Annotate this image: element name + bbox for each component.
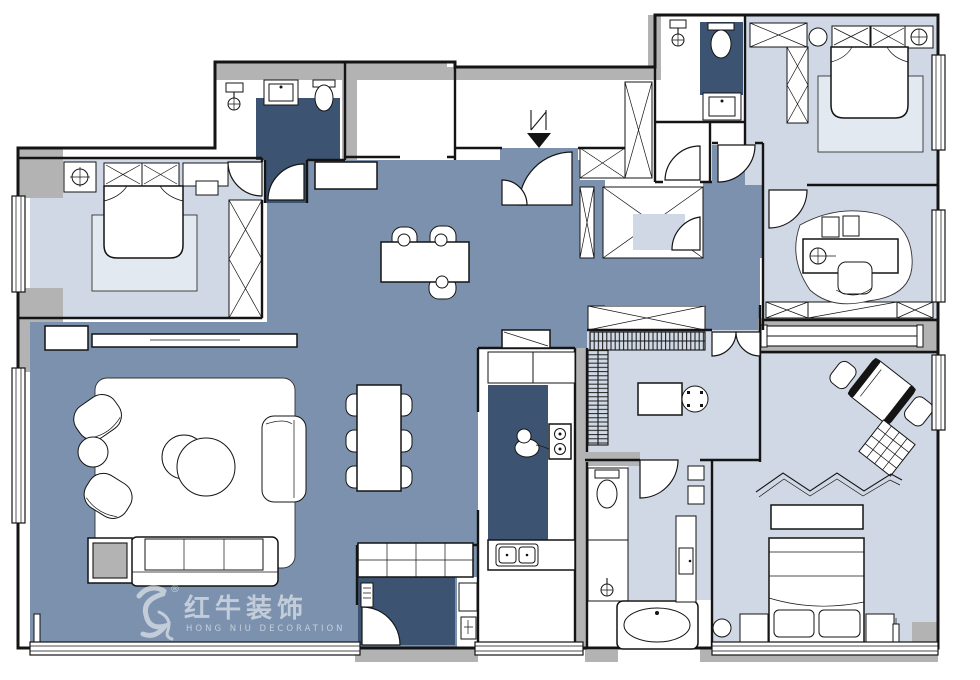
range-hood — [502, 330, 550, 348]
pillows — [832, 26, 906, 47]
nightstand — [866, 614, 894, 645]
window — [712, 642, 938, 655]
side-table-square — [88, 538, 132, 583]
bed-double — [104, 186, 183, 258]
watermark-brand-en: HONG NIU DECORATION — [186, 624, 346, 634]
chaise-chair — [262, 416, 306, 502]
watermark-brand-cn: 红牛装饰 — [184, 593, 308, 624]
desk-chair — [836, 262, 872, 295]
wardrobe-top-cabinet — [588, 306, 705, 330]
pillows — [104, 163, 179, 186]
square-table — [638, 383, 682, 415]
bathtub-icon — [617, 601, 698, 649]
sink-icon — [703, 93, 741, 120]
nightstand — [740, 614, 768, 645]
tall-cabinet — [676, 516, 696, 602]
bed-double — [831, 47, 908, 118]
kitchen-sink-icon — [488, 540, 575, 570]
window — [12, 368, 25, 523]
cabinet-grid — [358, 543, 473, 577]
window — [932, 210, 945, 302]
dining-table — [357, 385, 401, 491]
ceiling-light-icon — [64, 162, 96, 192]
shower-icon — [226, 83, 243, 110]
drying-rail — [761, 325, 923, 347]
round-table — [682, 386, 708, 412]
ceiling-light-icon — [905, 26, 933, 48]
storage-closet — [603, 187, 703, 258]
window — [475, 642, 583, 655]
study-cabinet-row — [766, 302, 933, 318]
sink-icon — [264, 80, 298, 105]
toilet-icon — [595, 470, 619, 508]
side-table-round — [78, 437, 108, 467]
shower-icon — [670, 20, 686, 46]
window — [932, 355, 945, 430]
floor-plan-svg: ® 红牛装饰 HONG NIU DECORATION — [0, 0, 980, 680]
dining-area — [346, 385, 412, 491]
hanging-rail-horizontal — [590, 332, 705, 350]
plant — [713, 619, 731, 637]
hall-bench — [315, 162, 377, 189]
bed-double — [769, 538, 864, 645]
registered-mark: ® — [170, 584, 180, 595]
bench — [771, 505, 863, 529]
window — [932, 55, 945, 150]
entry-arrow-icon — [527, 110, 551, 148]
window — [12, 196, 25, 292]
stove-icon — [549, 424, 571, 459]
sofa-three-seat — [131, 537, 278, 586]
hanging-rail-vertical — [588, 350, 608, 445]
stool — [809, 28, 827, 46]
shower-room-door — [665, 146, 700, 180]
wardrobe-x-bedroom-left — [229, 200, 262, 318]
window — [30, 642, 360, 655]
window-crank-icon — [34, 614, 40, 642]
